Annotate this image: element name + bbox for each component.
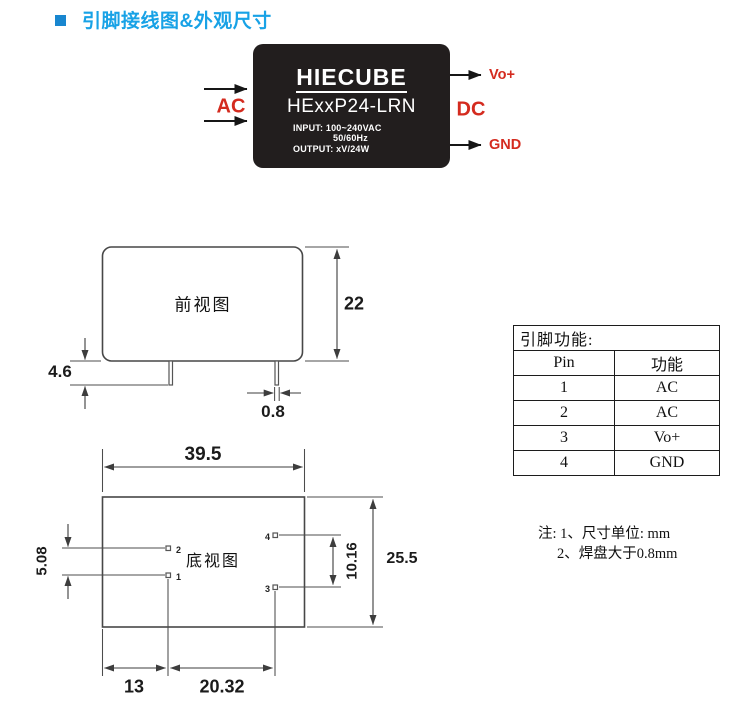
- col-header-func: 功能: [615, 351, 720, 376]
- pin-cell: 2: [514, 401, 615, 426]
- dim-pitch-5-08: 5.08: [34, 546, 51, 575]
- module-brand-logo: HIECUBE: [296, 66, 407, 93]
- table-row: 4 GND: [514, 451, 720, 476]
- func-cell: GND: [615, 451, 720, 476]
- pin-cell: 4: [514, 451, 615, 476]
- dc-output-label: DC: [457, 99, 486, 122]
- front-view-pin-right: [275, 361, 279, 385]
- bottom-view-pin2-pad: [166, 546, 171, 551]
- dim-height-22: 22: [344, 294, 364, 315]
- front-view-drawing: [70, 247, 349, 409]
- dim-width-39-5: 39.5: [185, 444, 222, 466]
- bottom-view-pin4-pad: [273, 533, 278, 538]
- note-line-2: 2、焊盘大于0.8mm: [557, 544, 677, 564]
- col-header-pin: Pin: [514, 351, 615, 376]
- pin-cell: 1: [514, 376, 615, 401]
- pin-cell: 3: [514, 426, 615, 451]
- module-spec-frequency: 50/60Hz: [293, 133, 450, 144]
- module-specs: INPUT: 100~240VAC 50/60Hz OUTPUT: xV/24W: [293, 123, 450, 155]
- notes-block: 注: 1、尺寸单位: mm 2、焊盘大于0.8mm: [538, 524, 677, 564]
- module-box: HIECUBE HExxP24-LRN INPUT: 100~240VAC 50…: [253, 44, 450, 168]
- table-row: 3 Vo+: [514, 426, 720, 451]
- dim-depth-25-5: 25.5: [386, 550, 417, 568]
- dim-span-20-32: 20.32: [199, 677, 244, 698]
- func-cell: Vo+: [615, 426, 720, 451]
- module-spec-output: OUTPUT: xV/24W: [293, 144, 450, 155]
- table-title: 引脚功能:: [514, 326, 720, 351]
- table-header-row: Pin 功能: [514, 351, 720, 376]
- note-line-1: 注: 1、尺寸单位: mm: [538, 524, 677, 544]
- dim-offset-13: 13: [124, 677, 144, 698]
- pin2-number: 2: [176, 545, 181, 555]
- dim-pitch-10-16: 10.16: [344, 542, 361, 580]
- dim-pin-length-4-6: 4.6: [48, 362, 72, 382]
- bottom-view-pin3-pad: [273, 585, 278, 590]
- table-row: 1 AC: [514, 376, 720, 401]
- table-title-row: 引脚功能:: [514, 326, 720, 351]
- pin4-number: 4: [265, 532, 270, 542]
- gnd-label: GND: [489, 137, 521, 153]
- module-model: HExxP24-LRN: [253, 97, 450, 118]
- ac-input-label: AC: [217, 96, 246, 119]
- bottom-view-title: 底视图: [186, 547, 240, 571]
- dim-pin-width-0-8: 0.8: [261, 402, 285, 422]
- pin1-number: 1: [176, 572, 181, 582]
- func-cell: AC: [615, 401, 720, 426]
- func-cell: AC: [615, 376, 720, 401]
- pin3-number: 3: [265, 584, 270, 594]
- vo-plus-label: Vo+: [489, 67, 515, 83]
- front-view-pin-left: [169, 361, 173, 385]
- front-view-title: 前视图: [175, 291, 232, 316]
- bottom-view-pin1-pad: [166, 573, 171, 578]
- pin-function-table: 引脚功能: Pin 功能 1 AC 2 AC 3 Vo+ 4 GND: [513, 325, 720, 476]
- datasheet-page: 引脚接线图&外观尺寸: [0, 0, 750, 716]
- module-spec-input: INPUT: 100~240VAC: [293, 123, 450, 134]
- table-row: 2 AC: [514, 401, 720, 426]
